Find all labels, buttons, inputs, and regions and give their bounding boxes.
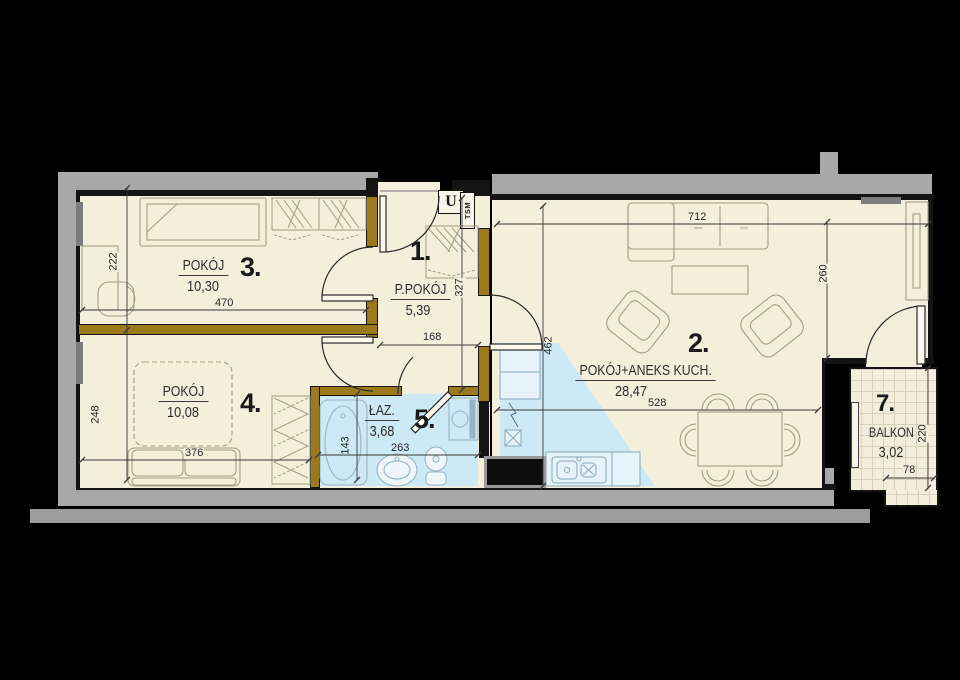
dim-222: 222 (109, 251, 120, 271)
dim-462: 462 (544, 336, 555, 354)
room-label-room3: POKÓJ 10,30 (168, 257, 238, 295)
room-area-bath: 3,68 (362, 421, 403, 440)
room-number-bath: 5. (414, 406, 435, 433)
room-label-room4: POKÓJ 10,08 (150, 383, 216, 421)
dim-168: 168 (422, 332, 442, 343)
room-name-living: POKÓJ+ANEKS KUCH. (575, 363, 715, 381)
tsm-shaft: TSM (460, 192, 475, 229)
neighbor-wall-band (30, 509, 870, 523)
tsm-label: TSM (463, 202, 472, 219)
exterior-wall-bottom (58, 490, 834, 506)
room-area-balcony: 3,02 (863, 442, 919, 461)
room-area-hall: 5,39 (389, 300, 447, 319)
exterior-wall-stub (820, 152, 838, 176)
balcony-floor-tab (884, 490, 939, 507)
room-number-room4: 4. (240, 390, 261, 417)
wall-bath-right-black (479, 402, 489, 458)
wall-room3-room4 (78, 324, 378, 335)
wall-hall-living-lower (478, 346, 490, 402)
room-name-room4: POKÓJ (158, 384, 208, 402)
floor-living-west (492, 200, 822, 488)
room-label-living: POKÓJ+ANEKS KUCH. 28,47 (560, 362, 702, 400)
dim-470: 470 (214, 298, 234, 309)
radiator-living (861, 197, 901, 204)
room-number-living: 2. (688, 330, 709, 357)
room-number-room3: 3. (240, 254, 261, 281)
kitchen-shaft-block (484, 456, 546, 488)
room-number-balcony: 7. (876, 390, 894, 417)
dim-327: 327 (455, 277, 466, 297)
dim-260: 260 (819, 263, 830, 283)
room-name-balcony: BALKON (864, 425, 917, 442)
u-label: U (445, 193, 457, 211)
dim-263: 263 (391, 443, 409, 454)
dim-143: 143 (341, 436, 352, 454)
room-name-room3: POKÓJ (178, 258, 228, 276)
wall-hall-living-upper (478, 228, 490, 296)
room-label-bath: ŁAZ. 3,68 (358, 402, 406, 440)
radiator-room3 (76, 202, 83, 246)
room-label-balcony: BALKON 3,02 (858, 424, 924, 461)
dim-248: 248 (91, 404, 102, 424)
room-label-hall: P.POKÓJ 5,39 (384, 281, 452, 319)
wall-bath-top-left (310, 386, 402, 396)
room-area-living: 28,47 (571, 381, 692, 400)
dim-712: 712 (687, 212, 707, 223)
room-name-bath: ŁAZ. (365, 403, 399, 421)
wall-line-southeast-a (820, 358, 868, 364)
room-area-room4: 10,08 (155, 402, 211, 421)
floorplan: U TSM (0, 0, 960, 680)
wall-hall-room3-upper (366, 196, 378, 247)
dim-78: 78 (903, 465, 915, 476)
room-name-hall: P.POKÓJ (391, 282, 451, 300)
floor-entrance (378, 182, 440, 198)
exterior-wall-top-right (492, 174, 932, 196)
dim-376: 376 (184, 448, 204, 459)
radiator-room4 (76, 342, 83, 384)
room-number-hall: 1. (410, 238, 431, 265)
room-area-room3: 10,30 (173, 276, 233, 295)
wall-bath-left (310, 386, 320, 488)
wall-line-southeast-b (920, 358, 934, 364)
